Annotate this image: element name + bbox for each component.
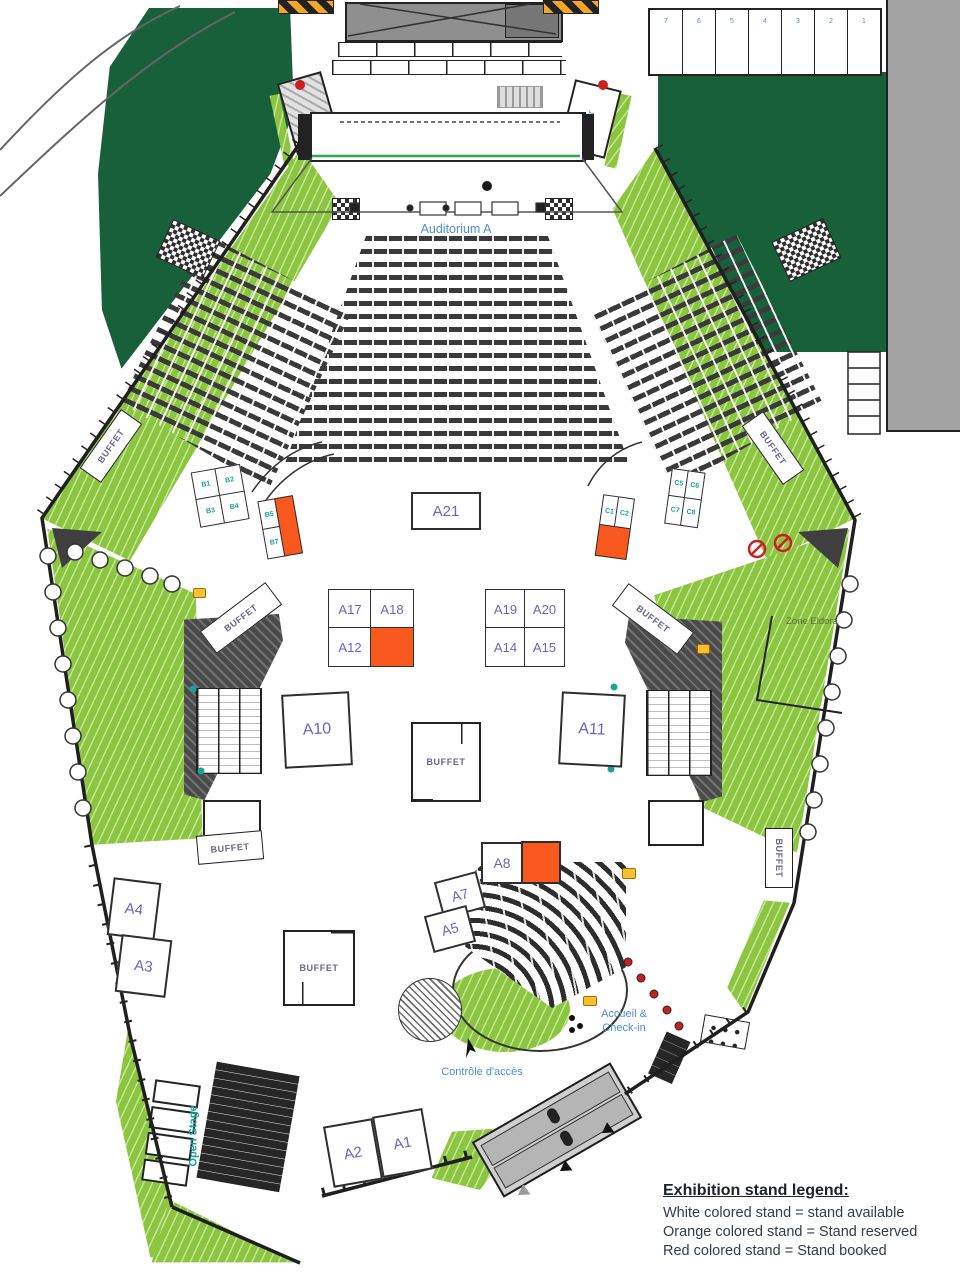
- stand-reserved: [595, 524, 631, 560]
- stand-reserved: [521, 841, 561, 884]
- stand-a3: A3: [115, 934, 173, 998]
- zone-eldora-label: Zone Eldora: [786, 616, 838, 628]
- stand-reserved: [370, 627, 414, 667]
- stand-a14: A14: [485, 627, 526, 667]
- table: [700, 1014, 750, 1050]
- stand-a18: A18: [370, 589, 414, 629]
- bay-number: 2: [829, 18, 833, 25]
- stand-label: A14: [494, 640, 517, 655]
- stand-label: A5: [440, 919, 461, 939]
- stage-pad-right: [545, 198, 573, 220]
- info-tag-left-structure: [193, 588, 206, 598]
- stand-a8: A8: [481, 842, 523, 884]
- hatched-circle: [398, 978, 462, 1042]
- stand-label: A8: [493, 855, 510, 871]
- stand-label: C8: [686, 509, 696, 517]
- legend-item-booked: Red colored stand = Stand booked: [663, 1243, 955, 1259]
- corner-wedges: [52, 528, 848, 568]
- exhibition-floor-plan: 7 6 5 4 3 2 1 LIFT Auditorium A: [0, 0, 960, 1280]
- service-ladder: [848, 352, 880, 434]
- stand-a4: A4: [107, 877, 162, 940]
- stand-label: B2: [225, 476, 235, 484]
- buffet-right: BUFFET: [765, 828, 793, 888]
- stand-label: B3: [206, 507, 216, 515]
- stand-label: B7: [269, 538, 279, 546]
- stand-a15: A15: [524, 627, 565, 667]
- stand-b4: B4: [219, 490, 250, 523]
- stand-a20: A20: [524, 589, 565, 629]
- stand-label: C1: [605, 507, 615, 515]
- info-tag-a8: [622, 868, 636, 879]
- bay: 1: [848, 10, 880, 74]
- stand-label: A3: [133, 956, 153, 975]
- buffet-label: BUFFET: [426, 757, 465, 767]
- bay: 7: [650, 10, 683, 74]
- buffet-center: BUFFET: [411, 722, 481, 802]
- bay-number: 1: [862, 18, 866, 25]
- stand-a19: A19: [485, 589, 526, 629]
- green-band-lower-right: [722, 898, 798, 1016]
- stage: [310, 112, 586, 162]
- seating-center: [282, 236, 632, 462]
- stage-pad-left: [332, 198, 360, 220]
- bay: 4: [749, 10, 782, 74]
- stand-label: A18: [380, 602, 403, 617]
- stand-label: B4: [229, 503, 239, 511]
- parking-bays: 7 6 5 4 3 2 1: [648, 8, 882, 76]
- bench: [648, 1031, 696, 1086]
- bay-number: 5: [730, 18, 734, 25]
- stand-block-a17: A17 A18 A12: [328, 589, 412, 665]
- bay: 6: [683, 10, 716, 74]
- stand-block-c1: C1 C2: [595, 494, 633, 558]
- stand-label: A15: [533, 640, 556, 655]
- info-tag-right-structure: [697, 644, 710, 654]
- stand-label: A17: [338, 602, 361, 617]
- stand-block-b1: B1 B2 B3 B4: [191, 464, 248, 526]
- buffet-lower-left: BUFFET: [196, 830, 264, 865]
- stand-block-b5: B5 B7: [257, 495, 300, 557]
- buffet-bottom-center: BUFFET: [283, 930, 355, 1006]
- stand-c2: C2: [614, 496, 635, 530]
- accueil-label: Accueil & Check-in: [588, 1008, 660, 1036]
- stand-a10: A10: [281, 691, 353, 768]
- stage-jamb-right: [582, 114, 594, 160]
- stand-label: C2: [619, 509, 629, 517]
- escalator-step: [545, 1106, 562, 1125]
- bay-number: 6: [697, 18, 701, 25]
- stand-label: A2: [342, 1143, 363, 1163]
- stand-label: B1: [201, 480, 211, 488]
- bay-number: 4: [763, 18, 767, 25]
- buffet-label: BUFFET: [774, 838, 784, 877]
- stand-a11: A11: [558, 691, 626, 767]
- stand-label: A20: [533, 602, 556, 617]
- bay: 3: [782, 10, 815, 74]
- stand-a17: A17: [328, 589, 372, 629]
- stand-a21: A21: [411, 492, 481, 530]
- green-triangle-bottom-left: [150, 1195, 300, 1263]
- stand-label: A7: [450, 885, 471, 905]
- stand-label: A11: [578, 720, 606, 739]
- auditorium-label: Auditorium A: [398, 222, 514, 238]
- tiered-structure-right-tables: [646, 690, 712, 776]
- bay: 2: [815, 10, 848, 74]
- stage-jamb-left: [298, 114, 310, 160]
- stand-a12: A12: [328, 627, 372, 667]
- info-tag-checkin: [583, 996, 597, 1006]
- stand-label: A19: [494, 602, 517, 617]
- bay-number: 7: [664, 18, 668, 25]
- stand-a1: A1: [372, 1108, 433, 1178]
- buffet-label: BUFFET: [299, 963, 338, 973]
- stand-label: A12: [338, 640, 361, 655]
- stand-label: C6: [690, 482, 700, 490]
- stand-label: A21: [433, 503, 460, 520]
- stand-block-c5: C5 C6 C7 C8: [664, 468, 703, 526]
- exhibition-legend: Exhibition stand legend: White colored s…: [663, 1182, 955, 1259]
- bay-number: 3: [796, 18, 800, 25]
- hazard-strip-left: [278, 0, 334, 14]
- stand-label: A4: [124, 899, 144, 918]
- legend-title: Exhibition stand legend:: [663, 1182, 955, 1200]
- open-stage-label: Open Stage: [188, 1105, 200, 1166]
- stage-podiums: [350, 202, 545, 215]
- room-right: [648, 800, 704, 846]
- stagehouse-modules: [338, 42, 562, 57]
- stage-floor-socket: [482, 181, 492, 191]
- stage-rear-platform: [332, 60, 566, 75]
- stage-stairs: [497, 86, 543, 108]
- controle-label: Contrôle d'accès: [432, 1066, 532, 1080]
- entrance-escalator: [472, 1062, 643, 1197]
- legend-item-available: White colored stand = stand available: [663, 1205, 955, 1221]
- open-stage-label-box: Open Stage: [184, 1098, 204, 1174]
- open-stage-chairs: [196, 1062, 299, 1193]
- hazard-strip-right: [543, 0, 599, 14]
- buffet-label: BUFFET: [210, 841, 250, 854]
- stand-label: A1: [392, 1133, 413, 1153]
- escalator-step: [558, 1129, 575, 1148]
- tiered-structure-left-tables: [196, 688, 262, 774]
- stand-block-a19: A19 A20 A14 A15: [485, 589, 563, 665]
- stand-label: C5: [674, 480, 684, 488]
- stand-label: A10: [302, 720, 331, 739]
- stand-label: B5: [264, 510, 274, 518]
- legend-item-reserved: Orange colored stand = Stand reserved: [663, 1224, 955, 1240]
- red-marker-icons: [295, 80, 608, 90]
- bay: 5: [716, 10, 749, 74]
- stand-label: C7: [670, 506, 680, 514]
- building-right: [886, 0, 960, 432]
- stand-c8: C8: [680, 497, 702, 528]
